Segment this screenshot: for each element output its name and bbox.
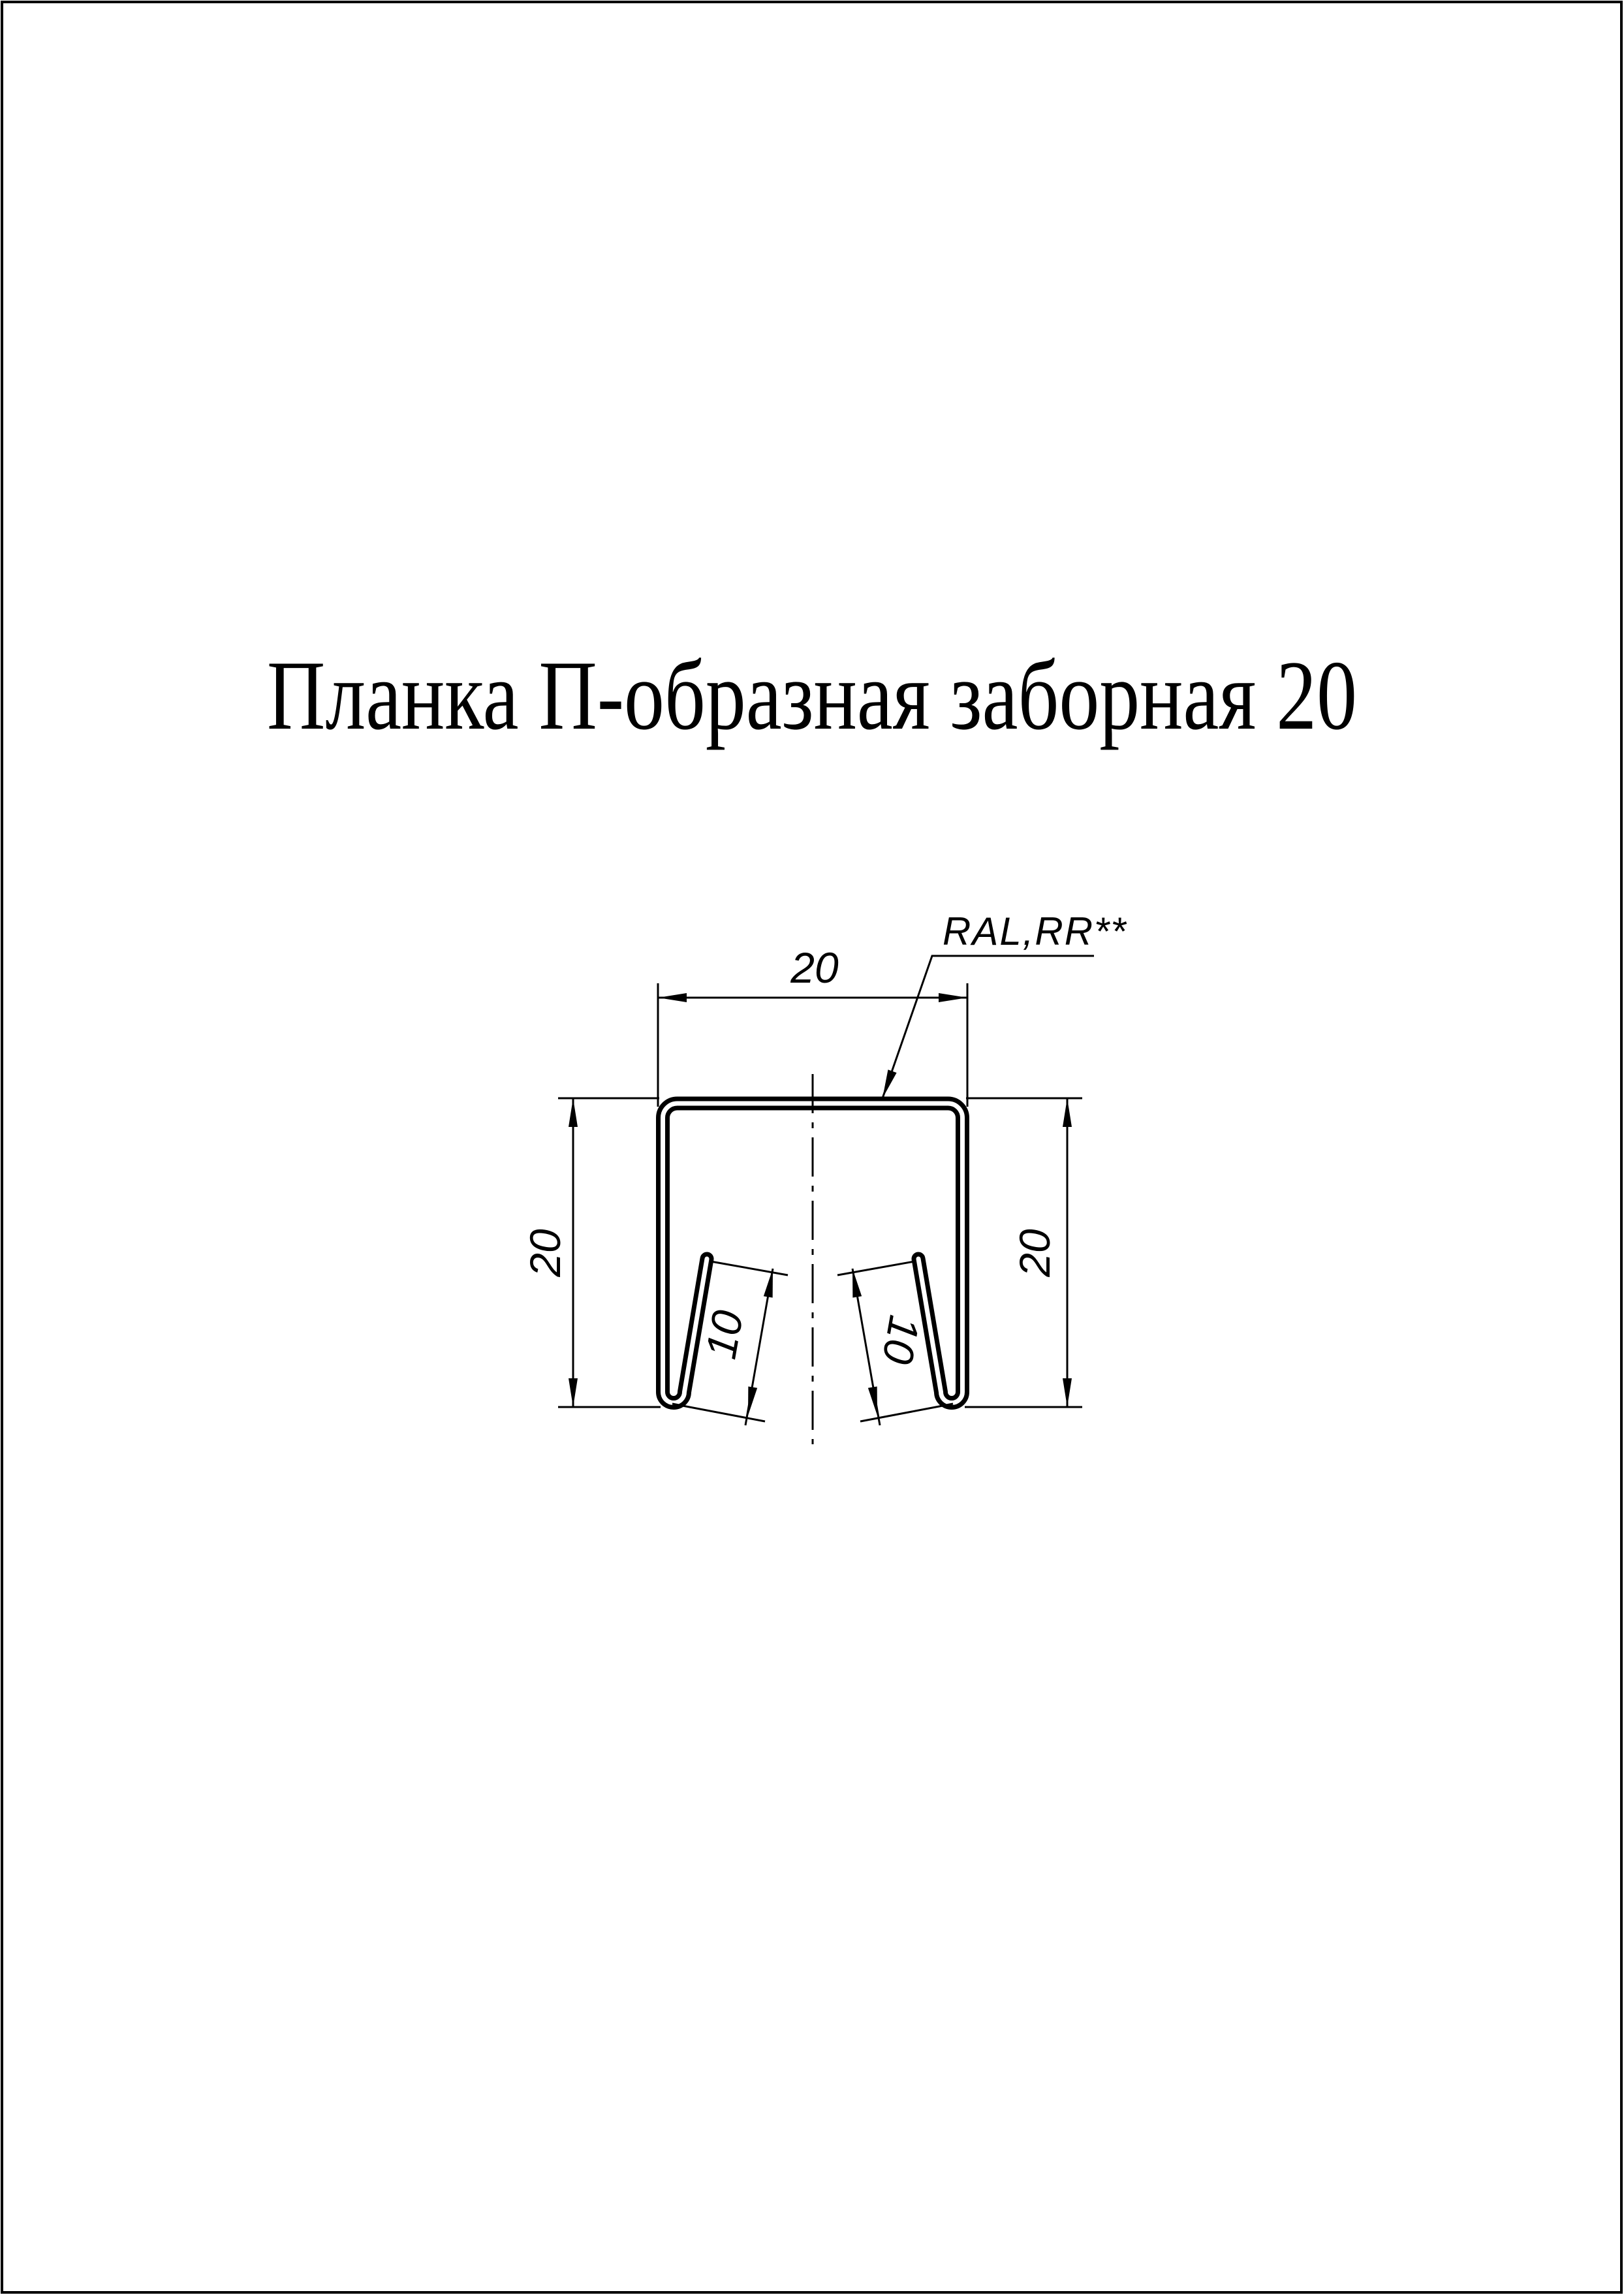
arrowhead-right-icon — [939, 993, 967, 1002]
coating-label: RAL,RR** — [943, 910, 1127, 953]
arrowhead-bottom-icon — [569, 1378, 578, 1407]
dim-flange-right-value: 10 — [873, 1312, 929, 1367]
dim-flange-left-value: 10 — [696, 1306, 753, 1362]
leader-arrowhead-icon — [878, 1069, 896, 1100]
arrowhead-bottom-icon — [743, 1386, 757, 1416]
extension-line-top — [711, 1261, 788, 1275]
dim-height-left-value: 20 — [521, 1229, 569, 1278]
dim-height-right-value: 20 — [1010, 1229, 1059, 1278]
drawing-sheet: Планка П-образная заборная 20 20 20 — [0, 0, 1624, 2295]
arrowhead-top-icon — [569, 1098, 578, 1127]
leader-line — [882, 956, 1094, 1098]
dim-width-value: 20 — [790, 943, 839, 992]
arrowhead-left-icon — [658, 993, 687, 1002]
page-title: Планка П-образная заборная 20 — [267, 641, 1357, 750]
extension-line-bottom — [672, 1404, 765, 1421]
dimension-height-left: 20 — [521, 1098, 661, 1407]
arrowhead-bottom-icon — [868, 1386, 882, 1416]
coating-leader: RAL,RR** — [878, 910, 1127, 1100]
extension-line-top — [837, 1261, 914, 1275]
arrowhead-bottom-icon — [1063, 1378, 1072, 1407]
arrowhead-top-icon — [1063, 1098, 1072, 1127]
extension-line-bottom — [860, 1404, 953, 1421]
dimension-height-right: 20 — [965, 1098, 1082, 1407]
